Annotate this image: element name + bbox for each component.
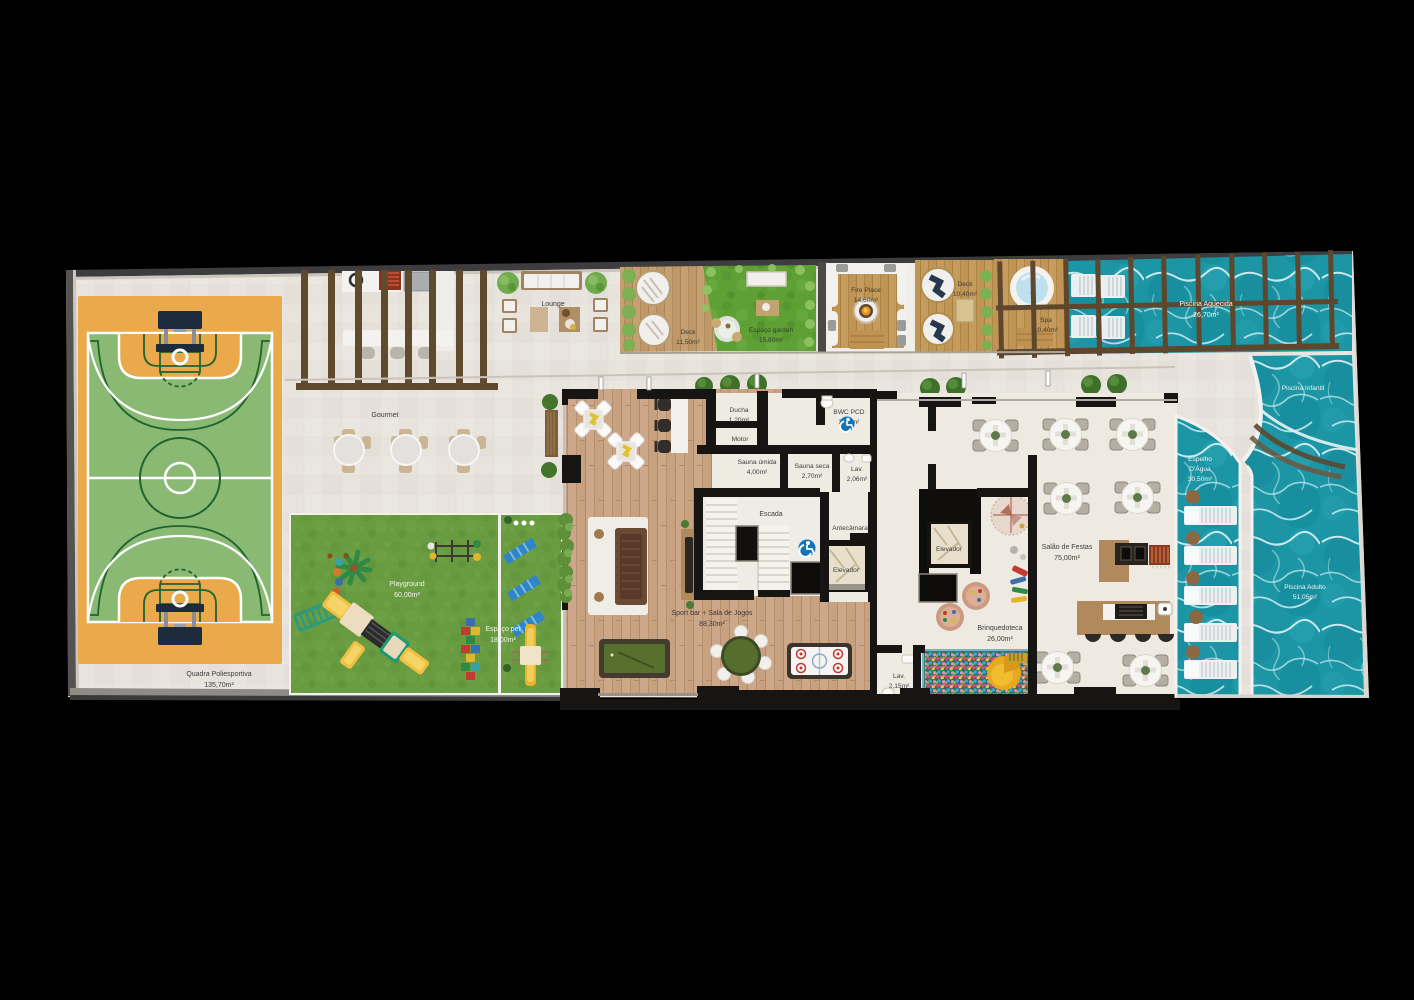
svg-text:88,30m²: 88,30m² xyxy=(699,621,725,628)
svg-text:Espaço pet: Espaço pet xyxy=(485,626,520,633)
svg-text:Deck: Deck xyxy=(957,281,973,288)
svg-text:Spa: Spa xyxy=(1040,317,1052,324)
svg-text:Espaço garden: Espaço garden xyxy=(749,327,794,334)
svg-text:60,00m²: 60,00m² xyxy=(394,592,420,599)
svg-text:10,40m²: 10,40m² xyxy=(1034,327,1059,334)
svg-text:26,00m²: 26,00m² xyxy=(987,636,1013,643)
svg-text:51,05m²: 51,05m² xyxy=(1293,594,1318,601)
svg-text:Salão de Festas: Salão de Festas xyxy=(1042,544,1093,551)
svg-text:18,00m²: 18,00m² xyxy=(490,637,516,644)
svg-text:Piscina Aquecida: Piscina Aquecida xyxy=(1179,301,1232,308)
svg-text:Lav.: Lav. xyxy=(851,466,863,473)
svg-text:75,00m²: 75,00m² xyxy=(1054,555,1080,562)
svg-text:D'Água: D'Água xyxy=(1189,464,1211,473)
svg-text:Brinquedoteca: Brinquedoteca xyxy=(977,625,1022,632)
svg-text:Antecâmara: Antecâmara xyxy=(832,525,868,532)
svg-text:Sport bar + Sala de Jogos: Sport bar + Sala de Jogos xyxy=(671,610,753,617)
svg-text:Elevador: Elevador xyxy=(936,546,963,553)
svg-text:4,00m²: 4,00m² xyxy=(747,469,768,476)
svg-text:26,70m²: 26,70m² xyxy=(1193,312,1219,319)
svg-text:Deck: Deck xyxy=(680,329,696,336)
svg-text:Motor: Motor xyxy=(732,436,750,443)
svg-text:30,50m²: 30,50m² xyxy=(1188,476,1213,483)
svg-text:1,20m²: 1,20m² xyxy=(729,417,750,424)
svg-text:Sauna seca: Sauna seca xyxy=(795,463,830,470)
svg-text:Ducha: Ducha xyxy=(729,407,748,414)
svg-text:Elevador: Elevador xyxy=(833,567,860,574)
svg-text:Playground: Playground xyxy=(389,581,425,588)
svg-text:Lav.: Lav. xyxy=(893,673,905,680)
svg-text:135,70m²: 135,70m² xyxy=(204,682,234,689)
svg-text:2,70m²: 2,70m² xyxy=(802,473,823,480)
svg-text:14,60m²: 14,60m² xyxy=(854,297,879,304)
svg-text:Gourmet: Gourmet xyxy=(371,412,398,419)
svg-text:11,50m²: 11,50m² xyxy=(676,339,701,346)
svg-text:Sauna úmida: Sauna úmida xyxy=(738,459,777,466)
svg-text:Escada: Escada xyxy=(759,511,782,518)
svg-text:Espelho: Espelho xyxy=(1188,456,1212,463)
svg-text:Lounge: Lounge xyxy=(541,301,564,308)
svg-text:BWC PCD: BWC PCD xyxy=(833,409,864,416)
svg-text:15,60m²: 15,60m² xyxy=(759,337,784,344)
svg-text:Piscina Infantil: Piscina Infantil xyxy=(1282,385,1325,392)
svg-text:Fire Place: Fire Place xyxy=(851,287,881,294)
svg-text:10,40m²: 10,40m² xyxy=(953,291,978,298)
svg-text:Quadra Poliesportiva: Quadra Poliesportiva xyxy=(186,671,251,678)
svg-text:2,06m²: 2,06m² xyxy=(847,476,868,483)
svg-text:Piscina Adulto: Piscina Adulto xyxy=(1284,584,1326,591)
